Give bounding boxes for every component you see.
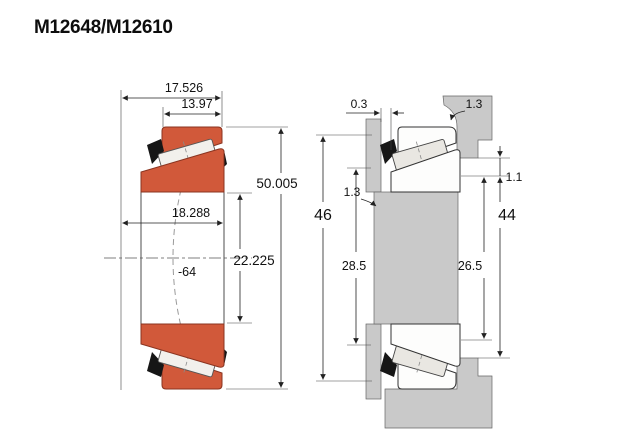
shaft-shoulder-collar-top — [366, 119, 381, 192]
bearing-datasheet-page: M12648/M12610 — [0, 0, 640, 440]
shaft-section — [374, 192, 458, 324]
dim-shaft-shoulder: 28.5 — [342, 259, 366, 273]
dim-outer-abutment: 46 — [314, 207, 332, 224]
dim-housing-shoulder: 44 — [498, 207, 516, 224]
dim-cup-width: 13.97 — [181, 97, 212, 111]
dim-step: 1.1 — [506, 170, 523, 184]
dim-apex-note: -64 — [178, 265, 196, 279]
dim-overall-width: 17.526 — [165, 81, 203, 95]
dim-cone-width: 18.288 — [172, 206, 210, 220]
shaft-shoulder-collar-bottom — [366, 324, 381, 399]
dim-backface-gap: 0.3 — [351, 97, 368, 111]
page-title: M12648/M12610 — [34, 17, 173, 38]
dim-inner-abutment: 26.5 — [458, 259, 482, 273]
left-view-bearing-section: 17.526 13.97 18.288 50.005 22.225 -64 — [104, 81, 298, 390]
dim-shaft-fillet: 1.3 — [344, 185, 361, 199]
dim-bore-diameter: 22.225 — [233, 253, 274, 268]
dim-housing-fillet: 1.3 — [466, 97, 483, 111]
bearing-drawing: M12648/M12610 — [0, 0, 640, 440]
dim-outer-diameter: 50.005 — [256, 176, 297, 191]
right-view-mounting-section: 0.3 1.3 1.3 46 28.5 26.5 1.1 44 — [314, 96, 523, 428]
